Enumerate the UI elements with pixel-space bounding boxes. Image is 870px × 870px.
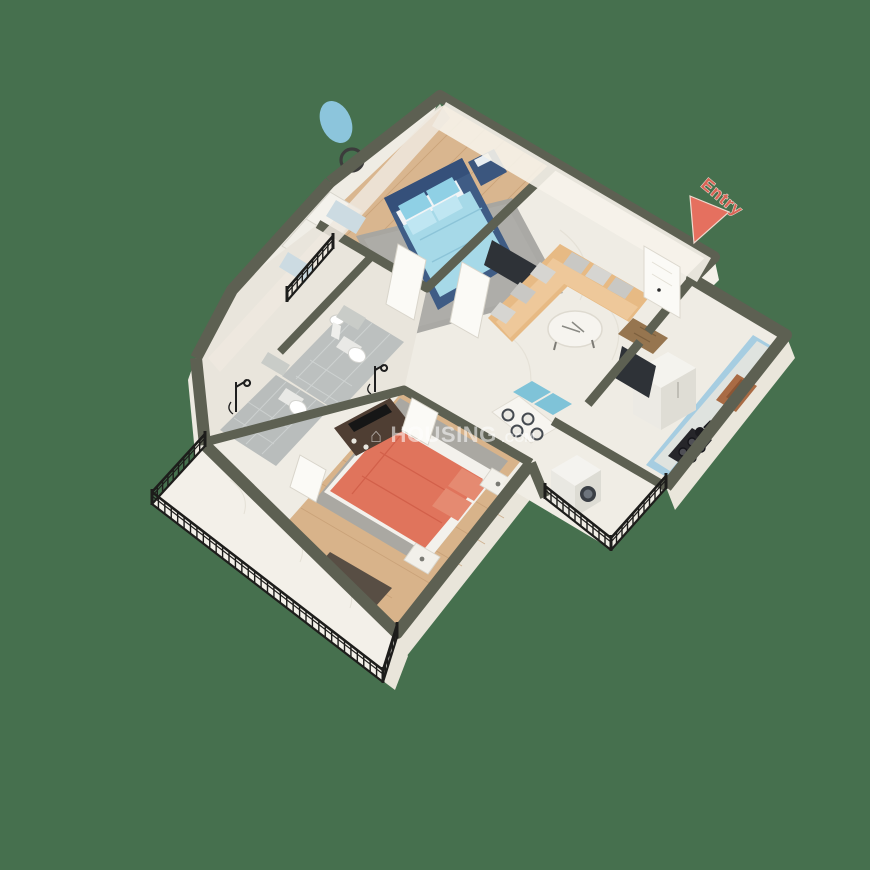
watermark-tld: .COM (501, 430, 535, 445)
floor-plan-scene: Entry ⌂ HOUSING .COM (0, 0, 870, 870)
watermark-brand: HOUSING (391, 422, 497, 447)
wall-decal (313, 96, 358, 148)
coffee-table (548, 311, 602, 350)
floor-plan-render: Entry ⌂ HOUSING .COM (0, 0, 870, 870)
housing-logo-icon: ⌂ (370, 425, 382, 447)
entry-marker: Entry (690, 175, 747, 243)
door-handle (657, 288, 661, 292)
